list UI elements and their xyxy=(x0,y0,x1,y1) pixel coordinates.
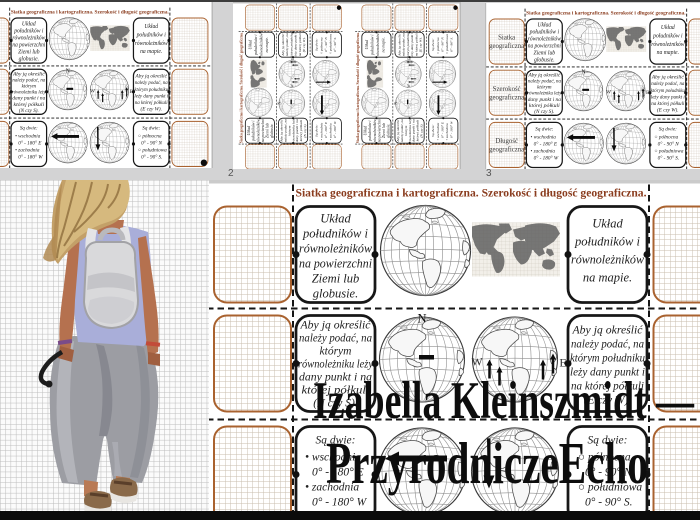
svg-text:2: 2 xyxy=(228,168,234,179)
svg-text:Izabella Kleinszmidt —: Izabella Kleinszmidt — xyxy=(313,372,695,430)
svg-text:PrzyrodniczeEcho: PrzyrodniczeEcho xyxy=(326,430,648,496)
svg-text:3: 3 xyxy=(486,168,492,179)
